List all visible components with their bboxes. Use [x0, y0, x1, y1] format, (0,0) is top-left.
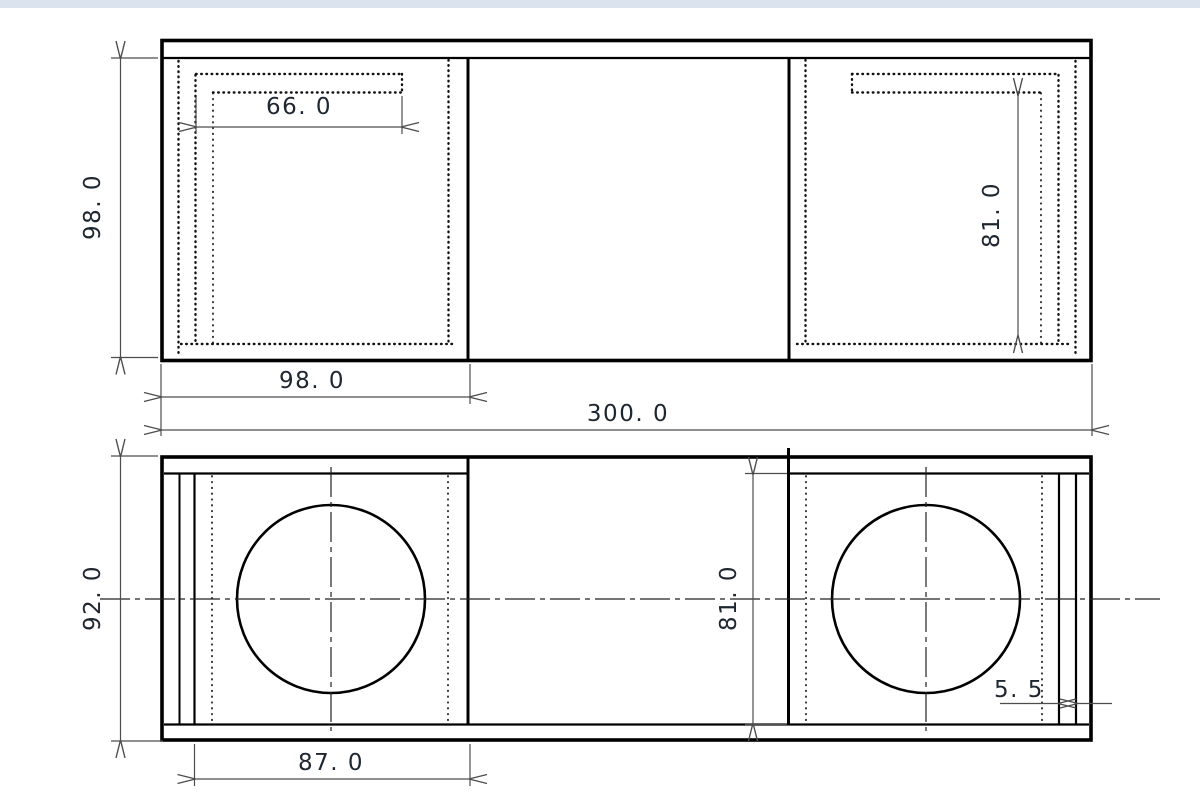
- dim-slot-width-label: 5. 5: [994, 677, 1044, 703]
- dim-left-section-width-label: 98. 0: [279, 368, 345, 394]
- dim-inner-height-label: 81. 0: [716, 565, 742, 631]
- drawing-canvas: 66. 0 98. 0 98. 0 300. 0 81. 0: [0, 0, 1200, 800]
- dim-depth-label: 98. 0: [80, 174, 106, 240]
- dim-port-length-label: 66. 0: [266, 94, 332, 120]
- dim-left-opening-width: 87. 0: [195, 744, 471, 786]
- top-view-outer-box: [162, 41, 1091, 361]
- dim-right-inner-depth-label: 81. 0: [979, 182, 1005, 248]
- dim-slot-width: 5. 5: [994, 677, 1112, 704]
- window-top-bar: [0, 0, 1200, 8]
- top-view-outline: [161, 41, 1092, 361]
- drawing-page: 66. 0 98. 0 98. 0 300. 0 81. 0: [0, 0, 1200, 800]
- top-view: [161, 41, 1092, 361]
- top-view-hidden-lines-right: [797, 60, 1076, 357]
- dim-right-inner-depth: 81. 0: [979, 96, 1018, 335]
- dim-left-opening-width-label: 87. 0: [298, 750, 364, 776]
- dim-port-length: 66. 0: [196, 94, 402, 134]
- dim-left-section-width: 98. 0: [161, 364, 470, 404]
- dim-overall-width-label: 300. 0: [587, 401, 669, 427]
- front-view-outline: [162, 448, 1091, 740]
- dimensions: 66. 0 98. 0 98. 0 300. 0 81. 0: [80, 58, 1112, 786]
- dim-depth: 98. 0: [80, 58, 158, 358]
- dim-overall-height-label: 92. 0: [80, 565, 106, 631]
